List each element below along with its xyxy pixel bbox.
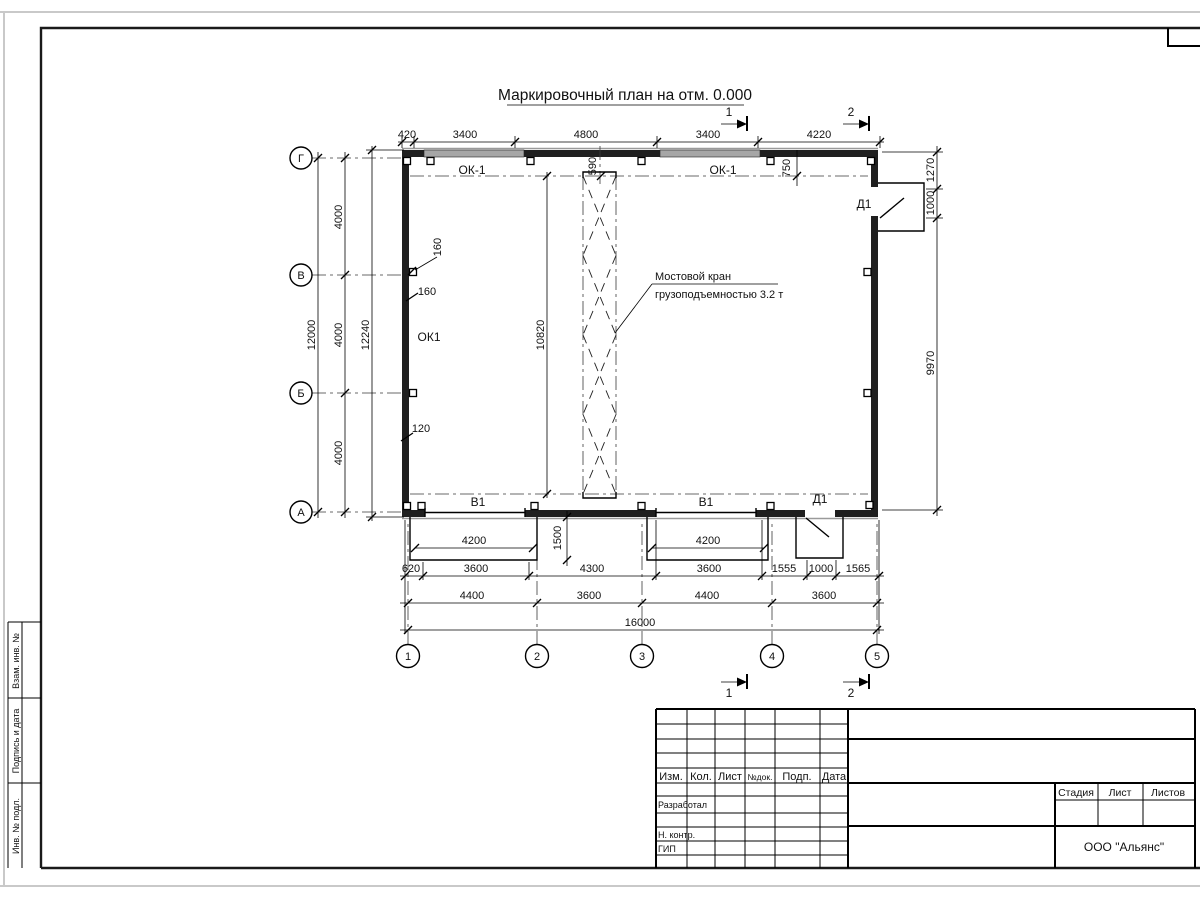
dim-top-2: 4800: [574, 129, 598, 141]
tb-col-kol: Кол.: [690, 771, 712, 783]
axis-col-2: 2: [534, 651, 540, 663]
tb-col-podp: Подп.: [782, 771, 811, 783]
tb-company: ООО "Альянс": [1084, 840, 1164, 854]
dim-left-span-2: 4000: [333, 441, 345, 465]
dims-left: 12240 4000 4000 4000 12000: [306, 146, 404, 521]
section-label-1: 1: [726, 105, 733, 119]
axis-row-b: Б: [297, 388, 304, 400]
section-marker-1-bottom: 1: [721, 674, 747, 700]
crane-note-line2: грузоподъемностью 3.2 т: [655, 289, 783, 301]
tb-row-developer: Разработал: [658, 800, 707, 810]
dim-b1-0: 620: [402, 563, 420, 575]
dim-left-total: 12000: [306, 320, 318, 351]
section-marker-1-top: 1: [721, 105, 747, 131]
dim-b2-2: 4400: [695, 590, 719, 602]
dim-b1-3: 3600: [697, 563, 721, 575]
mark-window-a: ОК-1: [459, 163, 486, 177]
dims-top: 420 3400 4800 3400 4220: [398, 129, 884, 148]
axis-col-5: 5: [874, 651, 880, 663]
window-strip-a: [424, 150, 524, 157]
door-leaf-bottom: [806, 518, 829, 537]
section-marker-2-bottom: 2: [843, 674, 869, 700]
dim-left-span-0: 4000: [333, 205, 345, 229]
title-block: Изм. Кол. Лист №док. Подп. Дата Разработ…: [656, 709, 1195, 868]
column-marks: [404, 158, 875, 510]
dim-590: 590: [587, 157, 599, 175]
dim-b1-1: 3600: [464, 563, 488, 575]
crane-note-line1: Мостовой кран: [655, 271, 731, 283]
gates-and-ramps: В1 В1 4200 4200 1500 Д1: [410, 492, 843, 566]
margin-label-podpis: Подпись и дата: [11, 709, 21, 774]
tb-row-ncontr: Н. контр.: [658, 830, 695, 840]
dim-ramp-depth: 1500: [552, 526, 564, 550]
door-top: Д1: [857, 183, 924, 231]
dim-top-4: 4220: [807, 129, 831, 141]
dim-b2-3: 3600: [812, 590, 836, 602]
mark-door-bottom: Д1: [813, 492, 828, 506]
margin-stamp: Взам. инв. № Подпись и дата Инв. № подл.: [8, 622, 41, 868]
dim-right-0: 1270: [925, 158, 937, 182]
crane-note: Мостовой кран грузоподъемностью 3.2 т: [615, 271, 783, 333]
section-marker-2-top: 2: [843, 105, 869, 131]
dim-top-1: 3400: [453, 129, 477, 141]
window-strip-b: [660, 150, 760, 157]
dim-b2-0: 4400: [460, 590, 484, 602]
tb-col-data: Дата: [822, 771, 847, 783]
dim-b1-4: 1555: [772, 563, 796, 575]
dim-750: 750: [781, 159, 793, 177]
dim-b1-2: 4300: [580, 563, 604, 575]
dim-bottom-total: 16000: [625, 617, 656, 629]
dims-right: 1270 1000 9970: [882, 146, 943, 516]
mark-window-b: ОК-1: [710, 163, 737, 177]
dim-right-1: 1000: [925, 191, 937, 215]
mark-gate-a: В1: [471, 495, 486, 509]
section-label-2: 2: [848, 105, 855, 119]
tb-stage: Стадия: [1058, 787, 1094, 799]
tb-col-list: Лист: [718, 771, 742, 783]
sheet-frame: [0, 12, 1200, 886]
tb-col-izm: Изм.: [659, 771, 683, 783]
dim-b2-1: 3600: [577, 590, 601, 602]
dim-gate-b: 4200: [696, 535, 720, 547]
dim-160-a: 160: [432, 238, 444, 256]
dim-top-0: 420: [398, 129, 416, 141]
mark-window-left: ОК1: [418, 330, 441, 344]
marking-plan-drawing: Взам. инв. № Подпись и дата Инв. № подл.…: [0, 0, 1200, 900]
axis-bubbles-bottom: 1 2 3 4 5: [397, 645, 889, 668]
door-leaf-top: [880, 198, 904, 218]
axis-row-v: В: [297, 270, 304, 282]
tb-col-ndok: №док.: [748, 772, 773, 782]
dim-120: 120: [412, 423, 430, 435]
margin-label-vzam: Взам. инв. №: [11, 633, 21, 689]
dim-top-3: 3400: [696, 129, 720, 141]
dim-left-overall: 12240: [360, 320, 372, 351]
walls: [402, 149, 878, 519]
section-markers: 1 2 1 2: [721, 105, 869, 700]
axis-row-a: А: [297, 507, 305, 519]
margin-label-inv: Инв. № подл.: [11, 798, 21, 854]
mark-gate-b: В1: [699, 495, 714, 509]
dim-b1-6: 1565: [846, 563, 870, 575]
axis-col-3: 3: [639, 651, 645, 663]
plan-title: Маркировочный план на отм. 0.000: [498, 87, 752, 105]
axis-col-4: 4: [769, 651, 775, 663]
mark-door-top: Д1: [857, 197, 872, 211]
axis-row-g: Г: [298, 153, 304, 165]
dim-right-2: 9970: [925, 351, 937, 375]
dim-crane-span: 10820: [535, 320, 547, 351]
section-label-1b: 1: [726, 686, 733, 700]
tb-row-gip: ГИП: [658, 844, 676, 854]
tb-sheet: Лист: [1109, 787, 1132, 799]
tb-sheets: Листов: [1151, 787, 1186, 799]
dim-gate-a: 4200: [462, 535, 486, 547]
axis-col-1: 1: [405, 651, 411, 663]
dim-left-span-1: 4000: [333, 323, 345, 347]
page-title: Маркировочный план на отм. 0.000: [498, 87, 752, 104]
crane-zone: 10820: [410, 146, 868, 498]
dim-b1-5: 1000: [809, 563, 833, 575]
section-label-2b: 2: [848, 686, 855, 700]
drawing-sheet: Взам. инв. № Подпись и дата Инв. № подл.…: [0, 0, 1200, 900]
dim-160-b: 160: [418, 286, 436, 298]
corner-stamp-box: [1168, 28, 1200, 46]
